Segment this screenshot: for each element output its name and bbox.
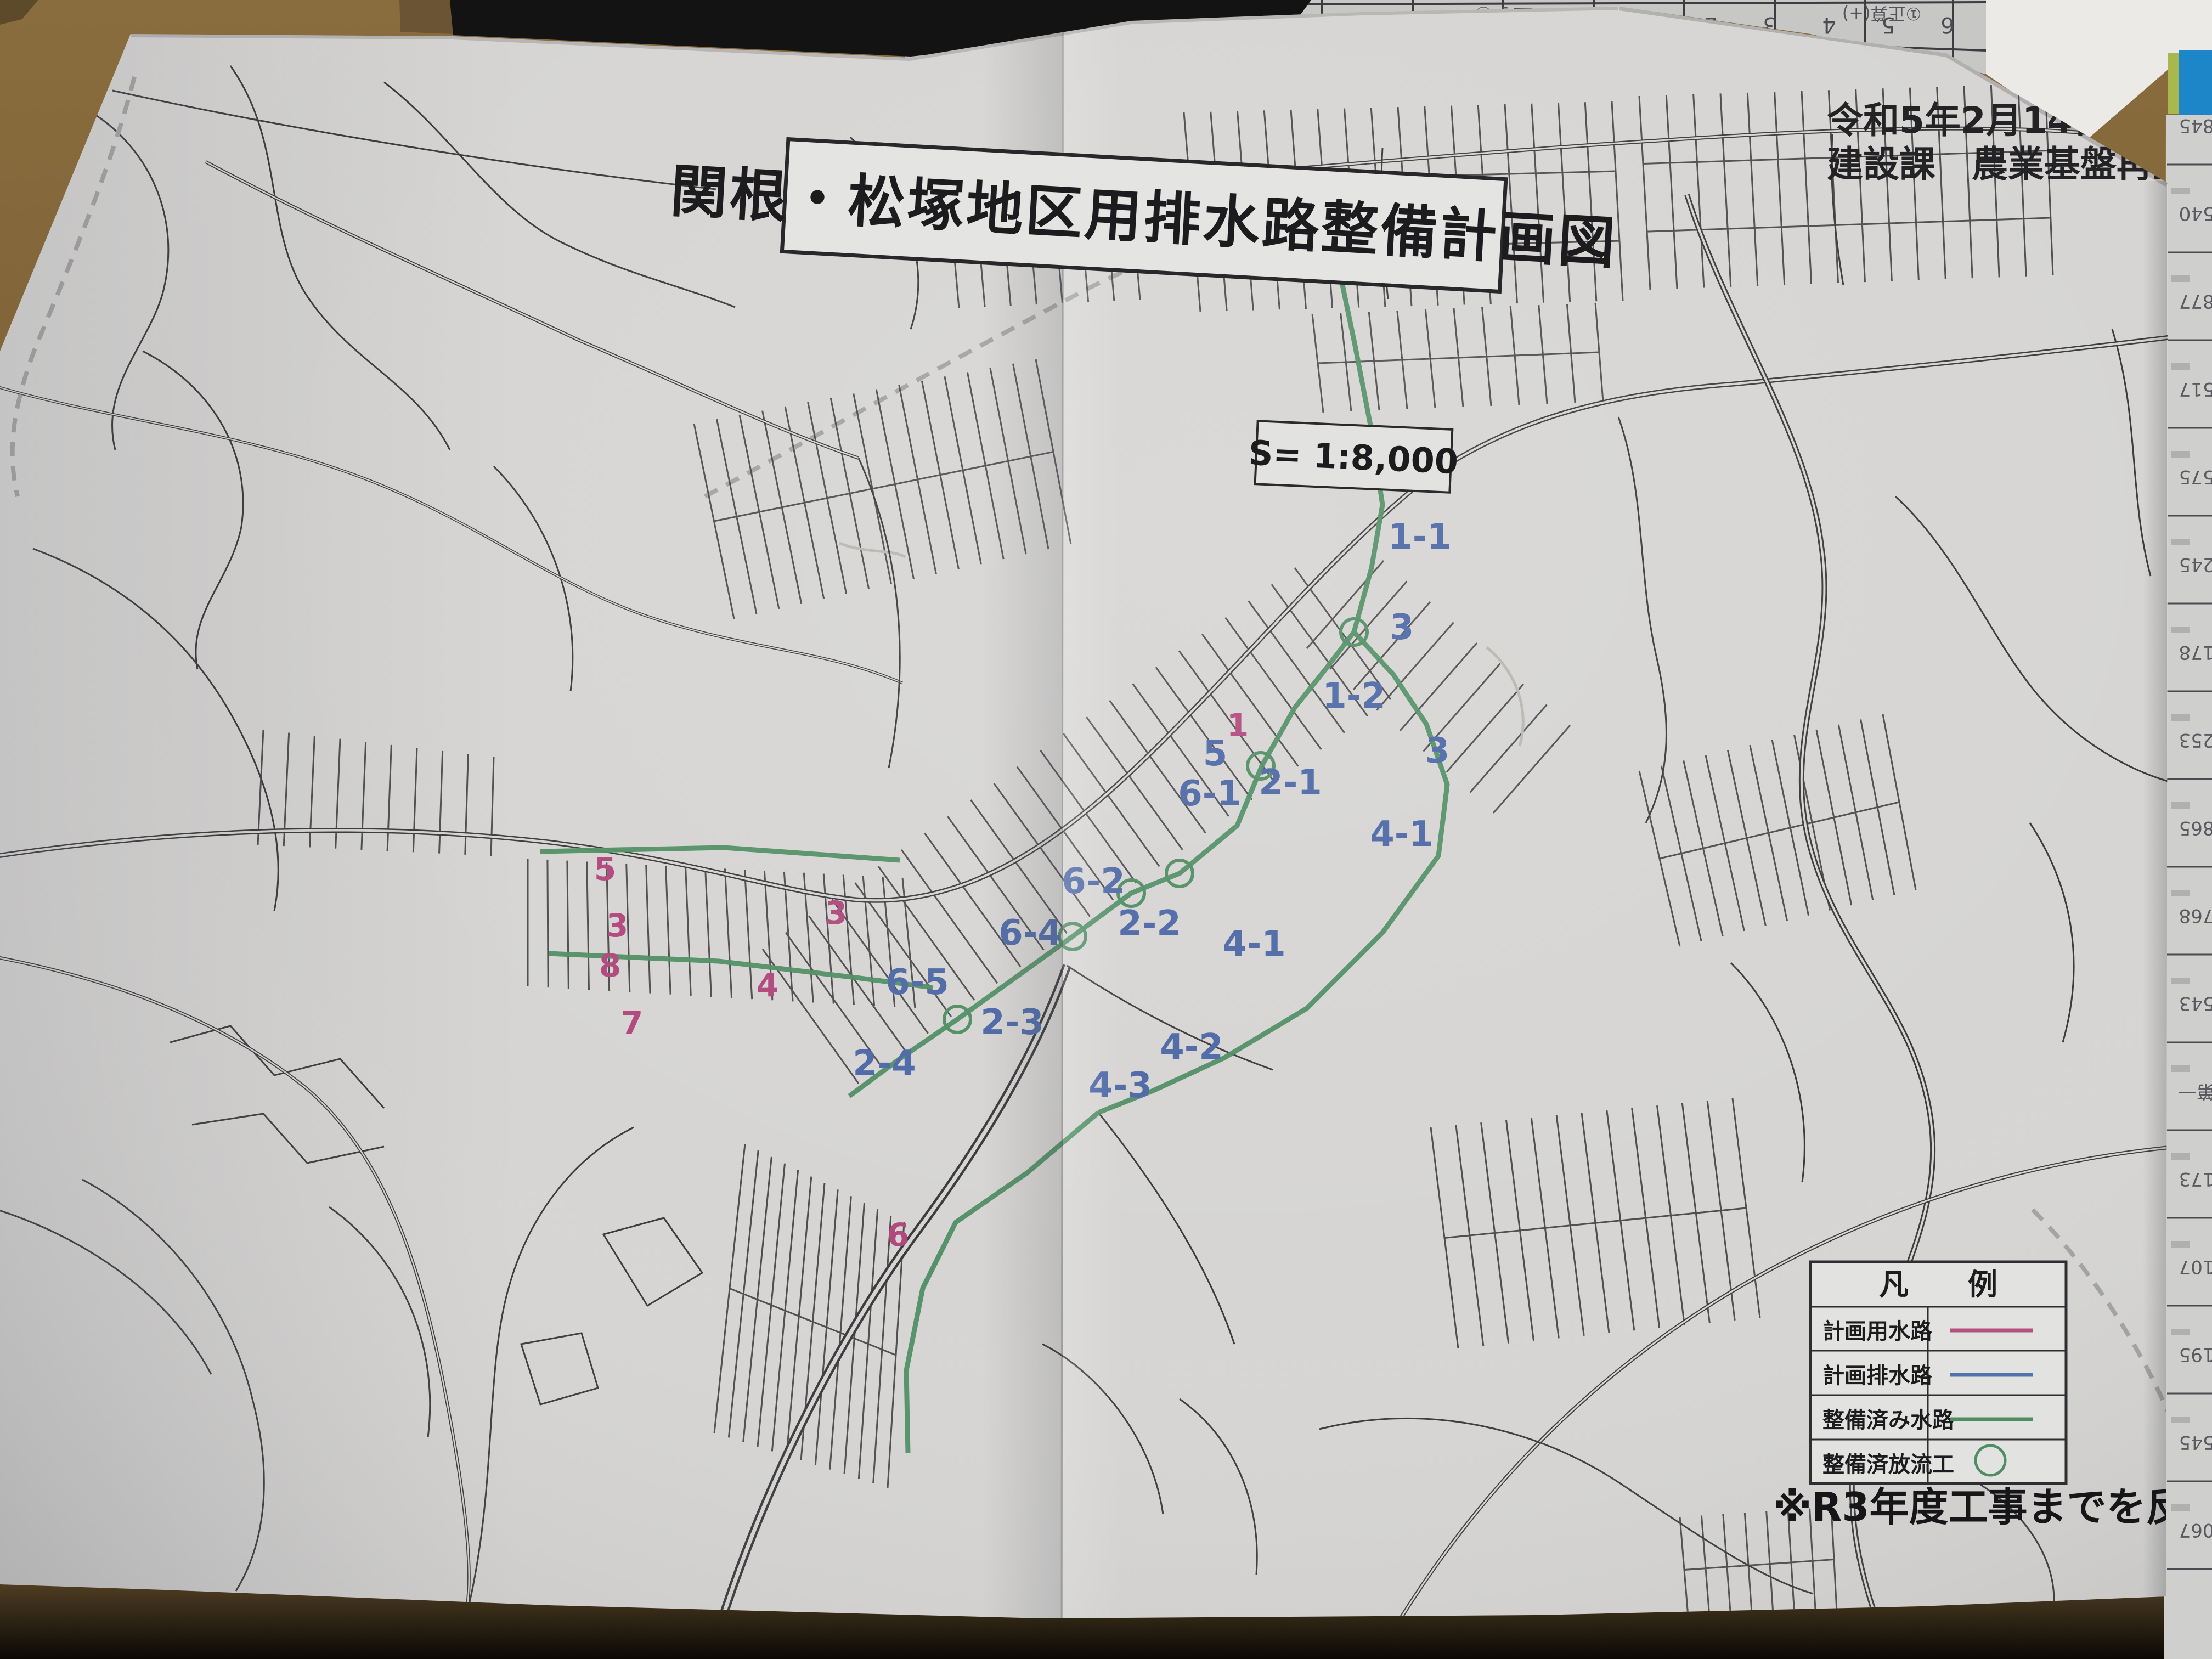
side-paper-blur-mark xyxy=(2171,802,2190,809)
side-paper-row-text: 540 xyxy=(2179,202,2212,224)
side-paper-blur-mark xyxy=(2171,1065,2190,1072)
sticky-note-blue xyxy=(2179,50,2212,115)
scene: 正子㉑ ①正算(+) 123456 8455408775175752451782… xyxy=(0,0,2212,1659)
sticky-note-green-edge xyxy=(2168,53,2180,114)
side-paper-blur-mark xyxy=(2171,627,2190,633)
side-paper-row-text: 768 xyxy=(2179,905,2212,927)
side-paper-blur-mark xyxy=(2171,1153,2190,1160)
upside-down-form-number: 4 xyxy=(1822,12,1836,37)
side-paper-blur-mark xyxy=(2171,978,2190,984)
desk-photo: { "title": "関根・松塚地区用排水路整備計画図", "scale_la… xyxy=(0,0,2212,1659)
note-text: ※R3年度工事までを反映 xyxy=(1773,1484,2212,1530)
legend-item-label: 整備済み水路 xyxy=(1822,1408,1955,1433)
side-paper-blur-mark xyxy=(2171,188,2190,194)
side-paper-blur-mark xyxy=(2171,1417,2190,1423)
side-paper-row-text: 253 xyxy=(2179,729,2212,751)
side-paper-row-text: 575 xyxy=(2179,466,2212,488)
legend-item-label: 整備済放流工 xyxy=(1822,1452,1954,1477)
under-paper-right: 845540877517575245178253865768543第一17310… xyxy=(2164,100,2212,1659)
side-paper-row-text: 877 xyxy=(2179,290,2212,312)
scale-box: S= 1:8,000 xyxy=(1248,421,1460,493)
side-paper-blur-mark xyxy=(2171,451,2190,458)
side-paper-blur-mark xyxy=(2171,714,2190,721)
side-paper-row-text: 107 xyxy=(2179,1256,2212,1278)
side-paper-row-text: 178 xyxy=(2179,641,2212,663)
side-paper-row-text: 245 xyxy=(2179,554,2212,575)
upside-down-form-number: 5 xyxy=(1881,12,1895,37)
side-paper-blur-mark xyxy=(2171,1329,2190,1335)
map-content: 1-131-2352-16-14-16-22-26-44-16-52-32-44… xyxy=(0,0,2212,1659)
side-paper-row-text: 067 xyxy=(2179,1519,2212,1541)
side-paper-row-text: 545 xyxy=(2179,1431,2212,1453)
desk-wood-gap xyxy=(399,0,453,34)
side-paper-blur-mark xyxy=(2171,363,2190,370)
side-paper-blur-mark xyxy=(2171,890,2190,896)
side-paper-row-text: 173 xyxy=(2179,1168,2212,1190)
upside-down-form-number: 6 xyxy=(1940,12,1954,37)
side-paper-row-text: 第一 xyxy=(2178,1080,2212,1102)
side-paper-row-text: 865 xyxy=(2179,817,2212,839)
side-paper-blur-mark xyxy=(2171,275,2190,282)
legend-item-label: 計画排水路 xyxy=(1822,1363,1933,1389)
legend-header: 凡 例 xyxy=(1879,1267,1997,1302)
legend-box: 凡 例 計画用水路 計画排水路 整備済み水路 整備済放流工 xyxy=(1810,1262,2066,1483)
side-paper-blur-mark xyxy=(2171,1241,2190,1248)
legend-item-label: 計画用水路 xyxy=(1822,1319,1933,1344)
sticky-note xyxy=(2168,50,2212,115)
side-paper-row-text: 517 xyxy=(2179,378,2212,400)
side-paper-row-text: 845 xyxy=(2179,115,2212,137)
side-paper-blur-mark xyxy=(2171,1504,2190,1511)
side-paper-row-text: 195 xyxy=(2179,1344,2212,1365)
side-paper-blur-mark xyxy=(2171,539,2190,545)
side-paper-row-text: 543 xyxy=(2179,992,2212,1014)
